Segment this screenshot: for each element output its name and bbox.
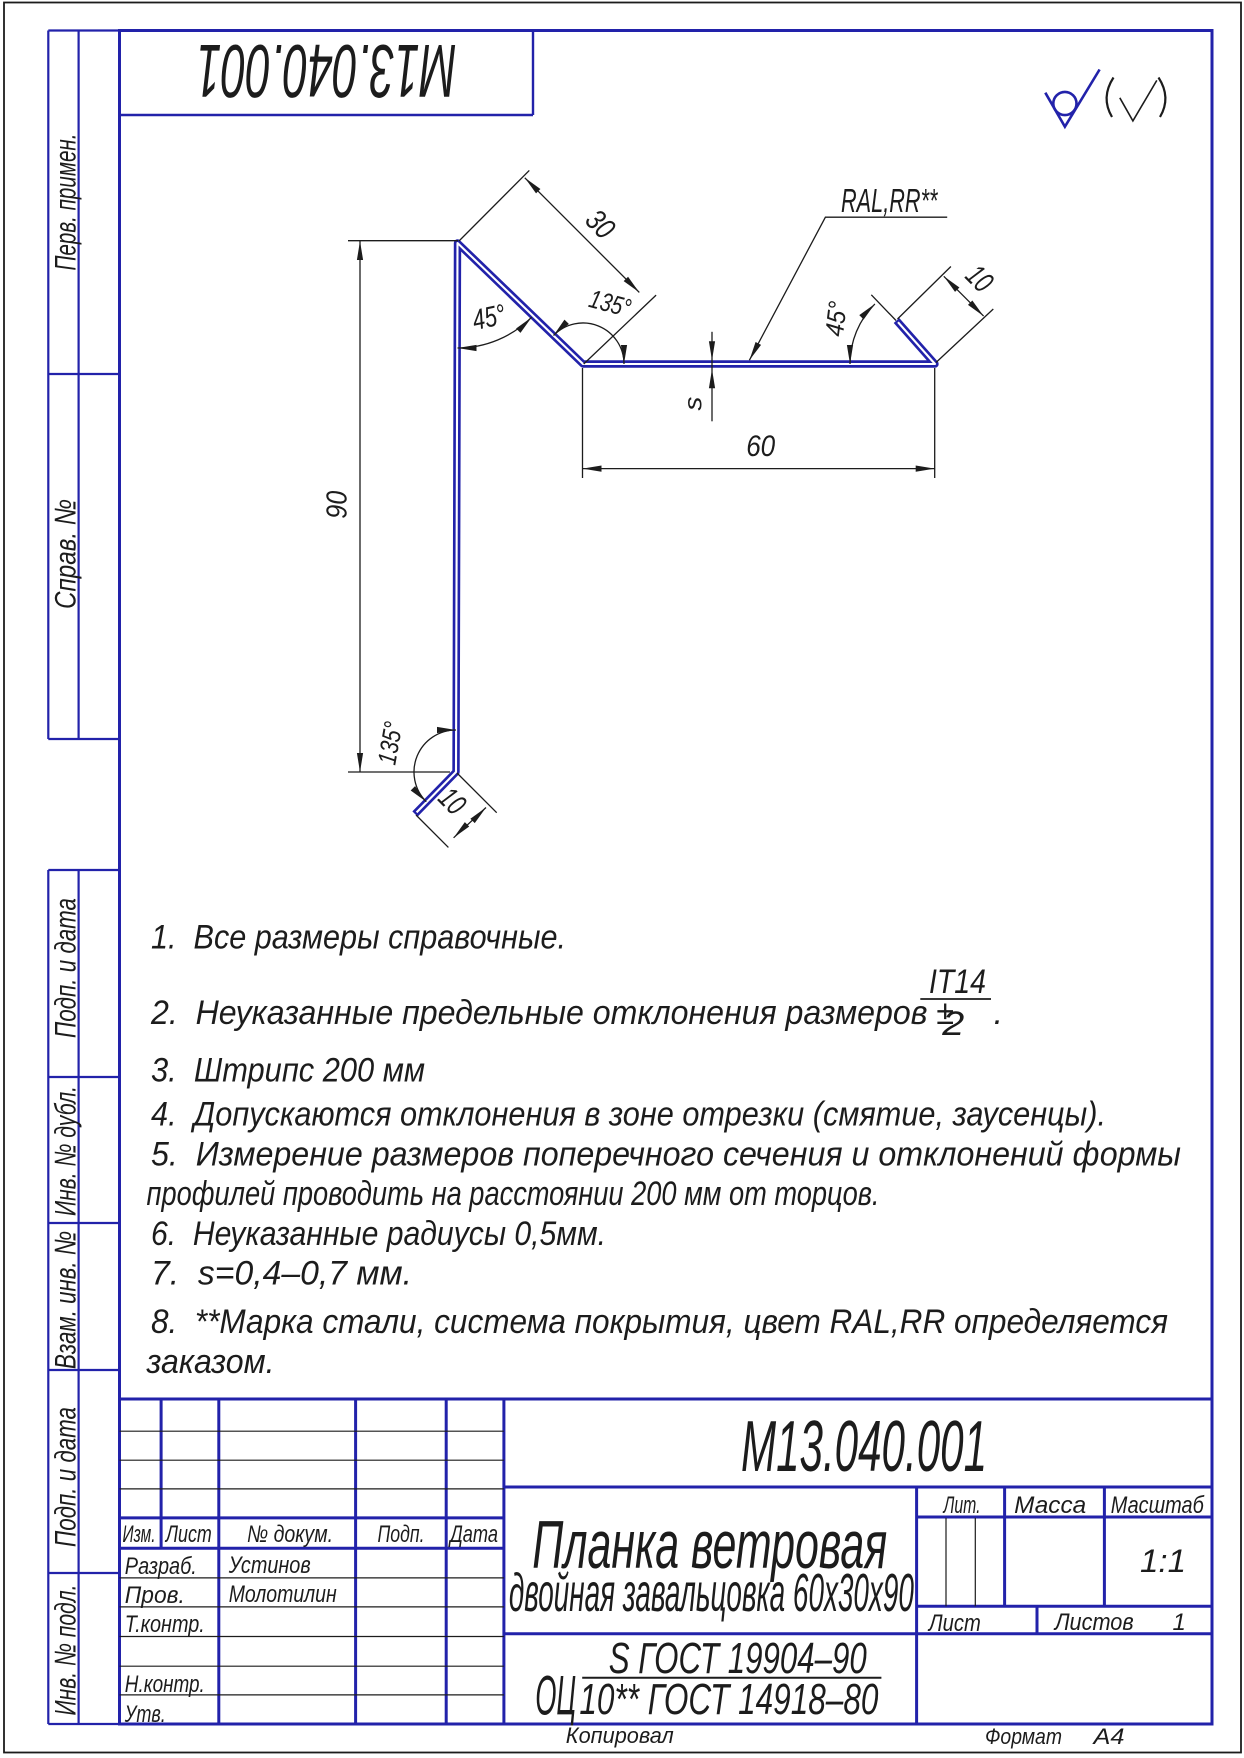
svg-text:М13.040.001: М13.040.001 <box>197 29 457 113</box>
svg-text:8. **Марка стали, система пок: 8. **Марка стали, система покрытия, цвет… <box>151 1303 1168 1341</box>
svg-text:Листов: Листов <box>1053 1609 1134 1636</box>
svg-text:Копировал: Копировал <box>566 1723 674 1748</box>
svg-text:Молотилин: Молотилин <box>229 1581 337 1608</box>
svg-text:профилей проводить на расстоян: профилей проводить на расстоянии 200 мм … <box>147 1175 880 1213</box>
svg-text:90: 90 <box>322 491 354 519</box>
svg-text:М13.040.001: М13.040.001 <box>741 1407 987 1487</box>
svg-text:Н.контр.: Н.контр. <box>125 1671 205 1698</box>
svg-text:заказом.: заказом. <box>146 1343 275 1381</box>
svg-text:.: . <box>994 994 1003 1032</box>
svg-text:1: 1 <box>1173 1609 1186 1636</box>
svg-text:Инв. № дубл.: Инв. № дубл. <box>50 1086 83 1216</box>
svg-text:2: 2 <box>941 1005 964 1043</box>
svg-text:7. s=0,4–0,7 мм.: 7. s=0,4–0,7 мм. <box>151 1255 412 1293</box>
svg-text:Лит.: Лит. <box>942 1492 980 1519</box>
svg-text:ОЦ: ОЦ <box>535 1664 576 1727</box>
svg-text:10** ГОСТ 14918–80: 10** ГОСТ 14918–80 <box>579 1675 878 1724</box>
svg-text:Подп. и дата: Подп. и дата <box>50 898 83 1038</box>
svg-text:Масштаб: Масштаб <box>1111 1492 1205 1519</box>
svg-text:3. Штрипс 200 мм: 3. Штрипс 200 мм <box>151 1051 425 1089</box>
svg-text:2. Неуказанные предельные отк: 2. Неуказанные предельные отклонения раз… <box>150 994 954 1032</box>
svg-text:Лист: Лист <box>164 1521 211 1548</box>
svg-text:s: s <box>680 397 708 411</box>
svg-text:Устинов: Устинов <box>228 1552 311 1579</box>
svg-text:4. Допускаются отклонения в з: 4. Допускаются отклонения в зоне отрезки… <box>151 1096 1106 1134</box>
svg-text:45°: 45° <box>819 300 853 338</box>
svg-text:Подп. и дата: Подп. и дата <box>50 1407 83 1547</box>
svg-text:1. Все размеры справочные.: 1. Все размеры справочные. <box>151 919 566 957</box>
svg-text:№ докум.: № докум. <box>247 1521 333 1548</box>
svg-text:Инв. № подл.: Инв. № подл. <box>50 1585 83 1716</box>
svg-text:двойная завальцовка 60х30х90: двойная завальцовка 60х30х90 <box>509 1563 914 1623</box>
svg-text:Перв. примен.: Перв. примен. <box>50 134 83 271</box>
svg-text:Подп.: Подп. <box>378 1521 425 1548</box>
svg-text:5. Измерение размеров попереч: 5. Измерение размеров поперечного сечени… <box>151 1135 1181 1173</box>
svg-text:Пров.: Пров. <box>125 1582 185 1609</box>
svg-text:Утв.: Утв. <box>124 1701 166 1728</box>
svg-text:IT14: IT14 <box>929 963 986 1001</box>
svg-text:1:1: 1:1 <box>1140 1543 1186 1579</box>
svg-text:А4: А4 <box>1091 1724 1124 1749</box>
svg-text:60: 60 <box>746 430 775 463</box>
svg-text:Масса: Масса <box>1014 1492 1086 1519</box>
svg-text:Справ. №: Справ. № <box>50 499 83 609</box>
svg-text:Взам. инв. №: Взам. инв. № <box>50 1231 83 1369</box>
svg-text:Изм.: Изм. <box>123 1521 156 1548</box>
svg-text:Формат: Формат <box>985 1724 1062 1749</box>
svg-text:Т.контр.: Т.контр. <box>125 1611 205 1638</box>
svg-text:Дата: Дата <box>448 1521 498 1548</box>
svg-text:RAL,RR**: RAL,RR** <box>841 182 938 219</box>
svg-text:Лист: Лист <box>927 1610 981 1637</box>
svg-text:6. Неуказанные радиусы 0,5мм.: 6. Неуказанные радиусы 0,5мм. <box>151 1215 606 1253</box>
svg-text:45°: 45° <box>470 299 509 337</box>
svg-text:Разраб.: Разраб. <box>125 1553 197 1580</box>
